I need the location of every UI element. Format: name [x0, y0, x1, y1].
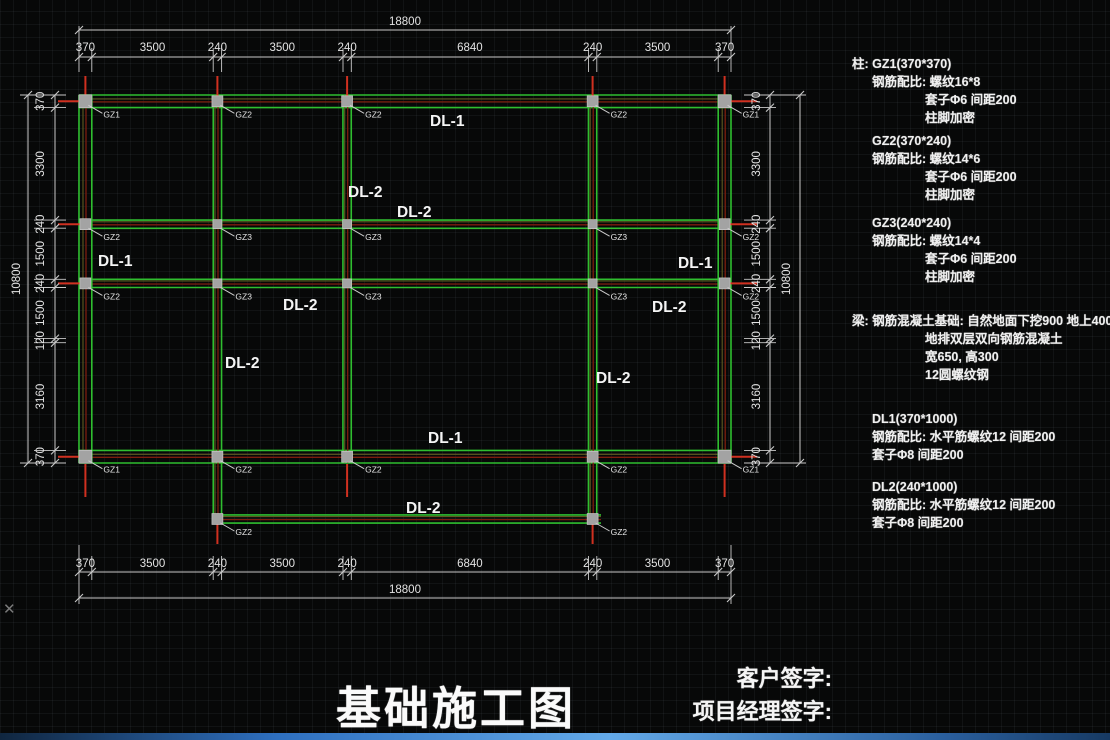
cad-foundation-drawing: GZ1GZ2GZ2GZ2GZ1GZ2GZ3GZ3GZ3GZ2GZ2GZ3GZ3G…	[0, 0, 1110, 740]
dim-seg-top: 3500	[140, 42, 166, 54]
dim-seg-top: 3500	[645, 42, 671, 54]
dim-seg-right: 370	[751, 92, 763, 111]
beam-label-dl-2: DL-2	[348, 184, 382, 201]
dim-seg-bottom: 3500	[270, 558, 296, 570]
spec-note-line: 套子Φ6 间距200	[852, 92, 1110, 108]
dim-seg-left: 370	[35, 447, 47, 466]
dim-seg-bottom: 240	[583, 558, 602, 570]
spec-note-line: 柱脚加密	[852, 187, 1110, 203]
dim-seg-left: 120	[35, 331, 47, 350]
manager-signature-label: 项目经理签字:	[580, 695, 832, 728]
spec-note-line: 钢筋配比: 螺纹14*6	[852, 151, 1110, 167]
column-marker-gz2	[80, 219, 91, 230]
beam-label-dl-1: DL-1	[428, 430, 463, 447]
column-marker-gz2	[719, 219, 730, 230]
column-marker-gz2	[212, 451, 223, 462]
dim-seg-right: 1500	[751, 300, 763, 326]
beam-label-dl-1: DL-1	[678, 255, 713, 272]
dim-seg-left: 370	[35, 92, 47, 111]
dim-total-right: 10800	[781, 263, 793, 295]
beam-label-dl-2: DL-2	[652, 299, 686, 316]
spec-note-line: 套子Φ6 间距200	[852, 251, 1110, 267]
spec-note-line: 柱脚加密	[852, 269, 1110, 285]
dim-seg-left: 240	[35, 274, 47, 293]
dim-seg-bottom: 370	[76, 558, 95, 570]
dim-seg-right: 370	[751, 447, 763, 466]
drawing-title: 基础施工图	[336, 672, 576, 737]
column-marker-gz3	[343, 279, 352, 288]
column-label-gz2: GZ2	[235, 527, 252, 537]
dim-seg-top: 6840	[457, 42, 483, 54]
column-label-gz2: GZ2	[365, 109, 382, 119]
column-marker-gz3	[588, 220, 597, 229]
dim-total-left: 10800	[11, 263, 23, 295]
dim-total-bottom: 18800	[389, 584, 421, 596]
column-marker-gz2	[587, 451, 598, 462]
spec-note-line: 柱: GZ1(370*370)	[852, 56, 1110, 72]
stray-mark: ✕	[3, 600, 16, 618]
dim-seg-top: 240	[583, 42, 602, 54]
dim-seg-right: 240	[751, 215, 763, 234]
dim-seg-bottom: 370	[715, 558, 734, 570]
dim-seg-right: 3300	[751, 151, 763, 177]
dim-seg-right: 1500	[751, 241, 763, 267]
spec-note-line: 地排双层双向钢筋混凝土	[852, 331, 1110, 347]
dim-seg-bottom: 240	[338, 558, 357, 570]
column-marker-gz3	[588, 279, 597, 288]
spec-note-line: 钢筋配比: 螺纹14*4	[852, 233, 1110, 249]
spec-note-line: 12圆螺纹钢	[852, 367, 1110, 383]
column-label-gz3: GZ3	[611, 232, 628, 242]
column-marker-gz2	[342, 451, 353, 462]
dim-seg-right: 3160	[751, 384, 763, 410]
dim-seg-right: 240	[751, 274, 763, 293]
beam-label-dl-2: DL-2	[397, 204, 431, 221]
dim-seg-bottom: 3500	[645, 558, 671, 570]
column-label-gz3: GZ3	[235, 291, 252, 301]
column-marker-gz2	[212, 514, 223, 525]
dim-seg-left: 3160	[35, 384, 47, 410]
column-marker-gz3	[213, 279, 222, 288]
dim-seg-top: 240	[208, 42, 227, 54]
dim-seg-top: 240	[338, 42, 357, 54]
column-label-gz2: GZ2	[365, 465, 382, 475]
column-label-gz2: GZ2	[235, 109, 252, 119]
column-label-gz2: GZ2	[611, 465, 628, 475]
dim-seg-right: 120	[751, 331, 763, 350]
dim-seg-bottom: 6840	[457, 558, 483, 570]
column-label-gz1: GZ1	[103, 109, 120, 119]
dim-seg-left: 240	[35, 215, 47, 234]
column-marker-gz2	[719, 278, 730, 289]
column-label-gz2: GZ2	[611, 527, 628, 537]
column-label-gz2: GZ2	[611, 109, 628, 119]
dim-seg-top: 3500	[270, 42, 296, 54]
dim-seg-bottom: 240	[208, 558, 227, 570]
beam-label-dl-2: DL-2	[406, 500, 440, 517]
column-label-gz3: GZ3	[365, 291, 382, 301]
dim-seg-top: 370	[715, 42, 734, 54]
spec-note-line: DL2(240*1000)	[852, 479, 1110, 495]
spec-note-line: 宽650, 高300	[852, 349, 1110, 365]
spec-note-line: 柱脚加密	[852, 110, 1110, 126]
column-label-gz3: GZ3	[235, 232, 252, 242]
spec-note-line: GZ3(240*240)	[852, 215, 1110, 231]
spec-notes: 柱: GZ1(370*370)钢筋配比: 螺纹16*8套子Φ6 间距200柱脚加…	[852, 56, 1110, 531]
beams-layer	[79, 95, 731, 523]
photo-edge-strip	[0, 733, 1110, 740]
spec-note-line: 钢筋配比: 螺纹16*8	[852, 74, 1110, 90]
column-marker-gz3	[213, 220, 222, 229]
column-label-gz1: GZ1	[103, 465, 120, 475]
column-label-gz2: GZ2	[103, 291, 120, 301]
spec-note-line: 套子Φ8 间距200	[852, 447, 1110, 463]
spec-note-line: GZ2(370*240)	[852, 133, 1110, 149]
beam-label-dl-2: DL-2	[225, 355, 259, 372]
dim-total-top: 18800	[389, 16, 421, 28]
column-marker-gz2	[80, 278, 91, 289]
dim-seg-left: 3300	[35, 151, 47, 177]
client-signature-label: 客户签字:	[580, 662, 832, 695]
column-marker-gz2	[212, 96, 223, 107]
spec-note-line: 钢筋配比: 水平筋螺纹12 间距200	[852, 497, 1110, 513]
dim-seg-bottom: 3500	[140, 558, 166, 570]
column-label-gz2: GZ2	[235, 465, 252, 475]
dim-seg-left: 1500	[35, 241, 47, 267]
beam-label-dl-2: DL-2	[596, 370, 630, 387]
column-label-gz3: GZ3	[365, 232, 382, 242]
spec-note-line: 套子Φ8 间距200	[852, 515, 1110, 531]
dim-seg-top: 370	[76, 42, 95, 54]
beam-labels-layer: DL-1DL-2DL-2DL-1DL-2DL-2DL-1DL-2DL-2DL-1…	[98, 113, 713, 517]
column-label-gz3: GZ3	[611, 291, 628, 301]
beam-label-dl-1: DL-1	[98, 253, 133, 270]
column-marker-gz2	[587, 514, 598, 525]
spec-note-line: 钢筋配比: 水平筋螺纹12 间距200	[852, 429, 1110, 445]
signature-block: 客户签字: 项目经理签字:	[580, 662, 832, 728]
column-label-gz2: GZ2	[103, 232, 120, 242]
spec-note-line: 套子Φ6 间距200	[852, 169, 1110, 185]
column-marker-gz2	[587, 96, 598, 107]
spec-note-line: 梁: 钢筋混凝土基础: 自然地面下挖900 地上400	[852, 313, 1110, 329]
column-marker-gz3	[343, 220, 352, 229]
beam-label-dl-1: DL-1	[430, 113, 465, 130]
beam-label-dl-2: DL-2	[283, 297, 317, 314]
column-marker-gz2	[342, 96, 353, 107]
dim-seg-left: 1500	[35, 300, 47, 326]
spec-note-line: DL1(370*1000)	[852, 411, 1110, 427]
